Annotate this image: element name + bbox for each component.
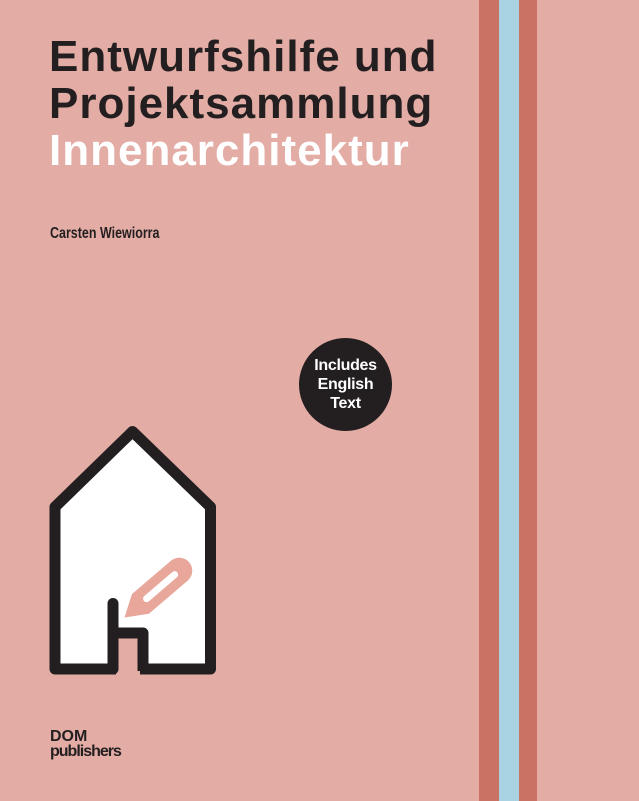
badge-line-2: English <box>318 375 374 394</box>
spine-stripe-blue <box>499 0 519 801</box>
subtitle: Innenarchitektur <box>49 127 438 174</box>
spine-stripe-terracotta-right <box>519 0 537 801</box>
title-block: Entwurfshilfe und Projektsammlung Innena… <box>49 33 438 174</box>
publisher-logo: DOM publishers <box>50 729 121 759</box>
publisher-line-2: publishers <box>50 744 121 759</box>
title-line-2: Projektsammlung <box>49 80 438 127</box>
door-opening <box>116 634 140 684</box>
author-name: Carsten Wiewiorra <box>50 225 159 243</box>
badge-line-3: Text <box>330 394 361 413</box>
includes-english-text-badge: Includes English Text <box>299 338 392 431</box>
house-icon <box>55 432 211 684</box>
publisher-line-1: DOM <box>50 729 121 744</box>
book-cover: Entwurfshilfe und Projektsammlung Innena… <box>0 0 639 801</box>
pencil-icon <box>116 552 198 627</box>
title-line-1: Entwurfshilfe und <box>49 33 438 80</box>
spine-stripe-terracotta-left <box>479 0 499 801</box>
badge-line-1: Includes <box>314 356 377 375</box>
